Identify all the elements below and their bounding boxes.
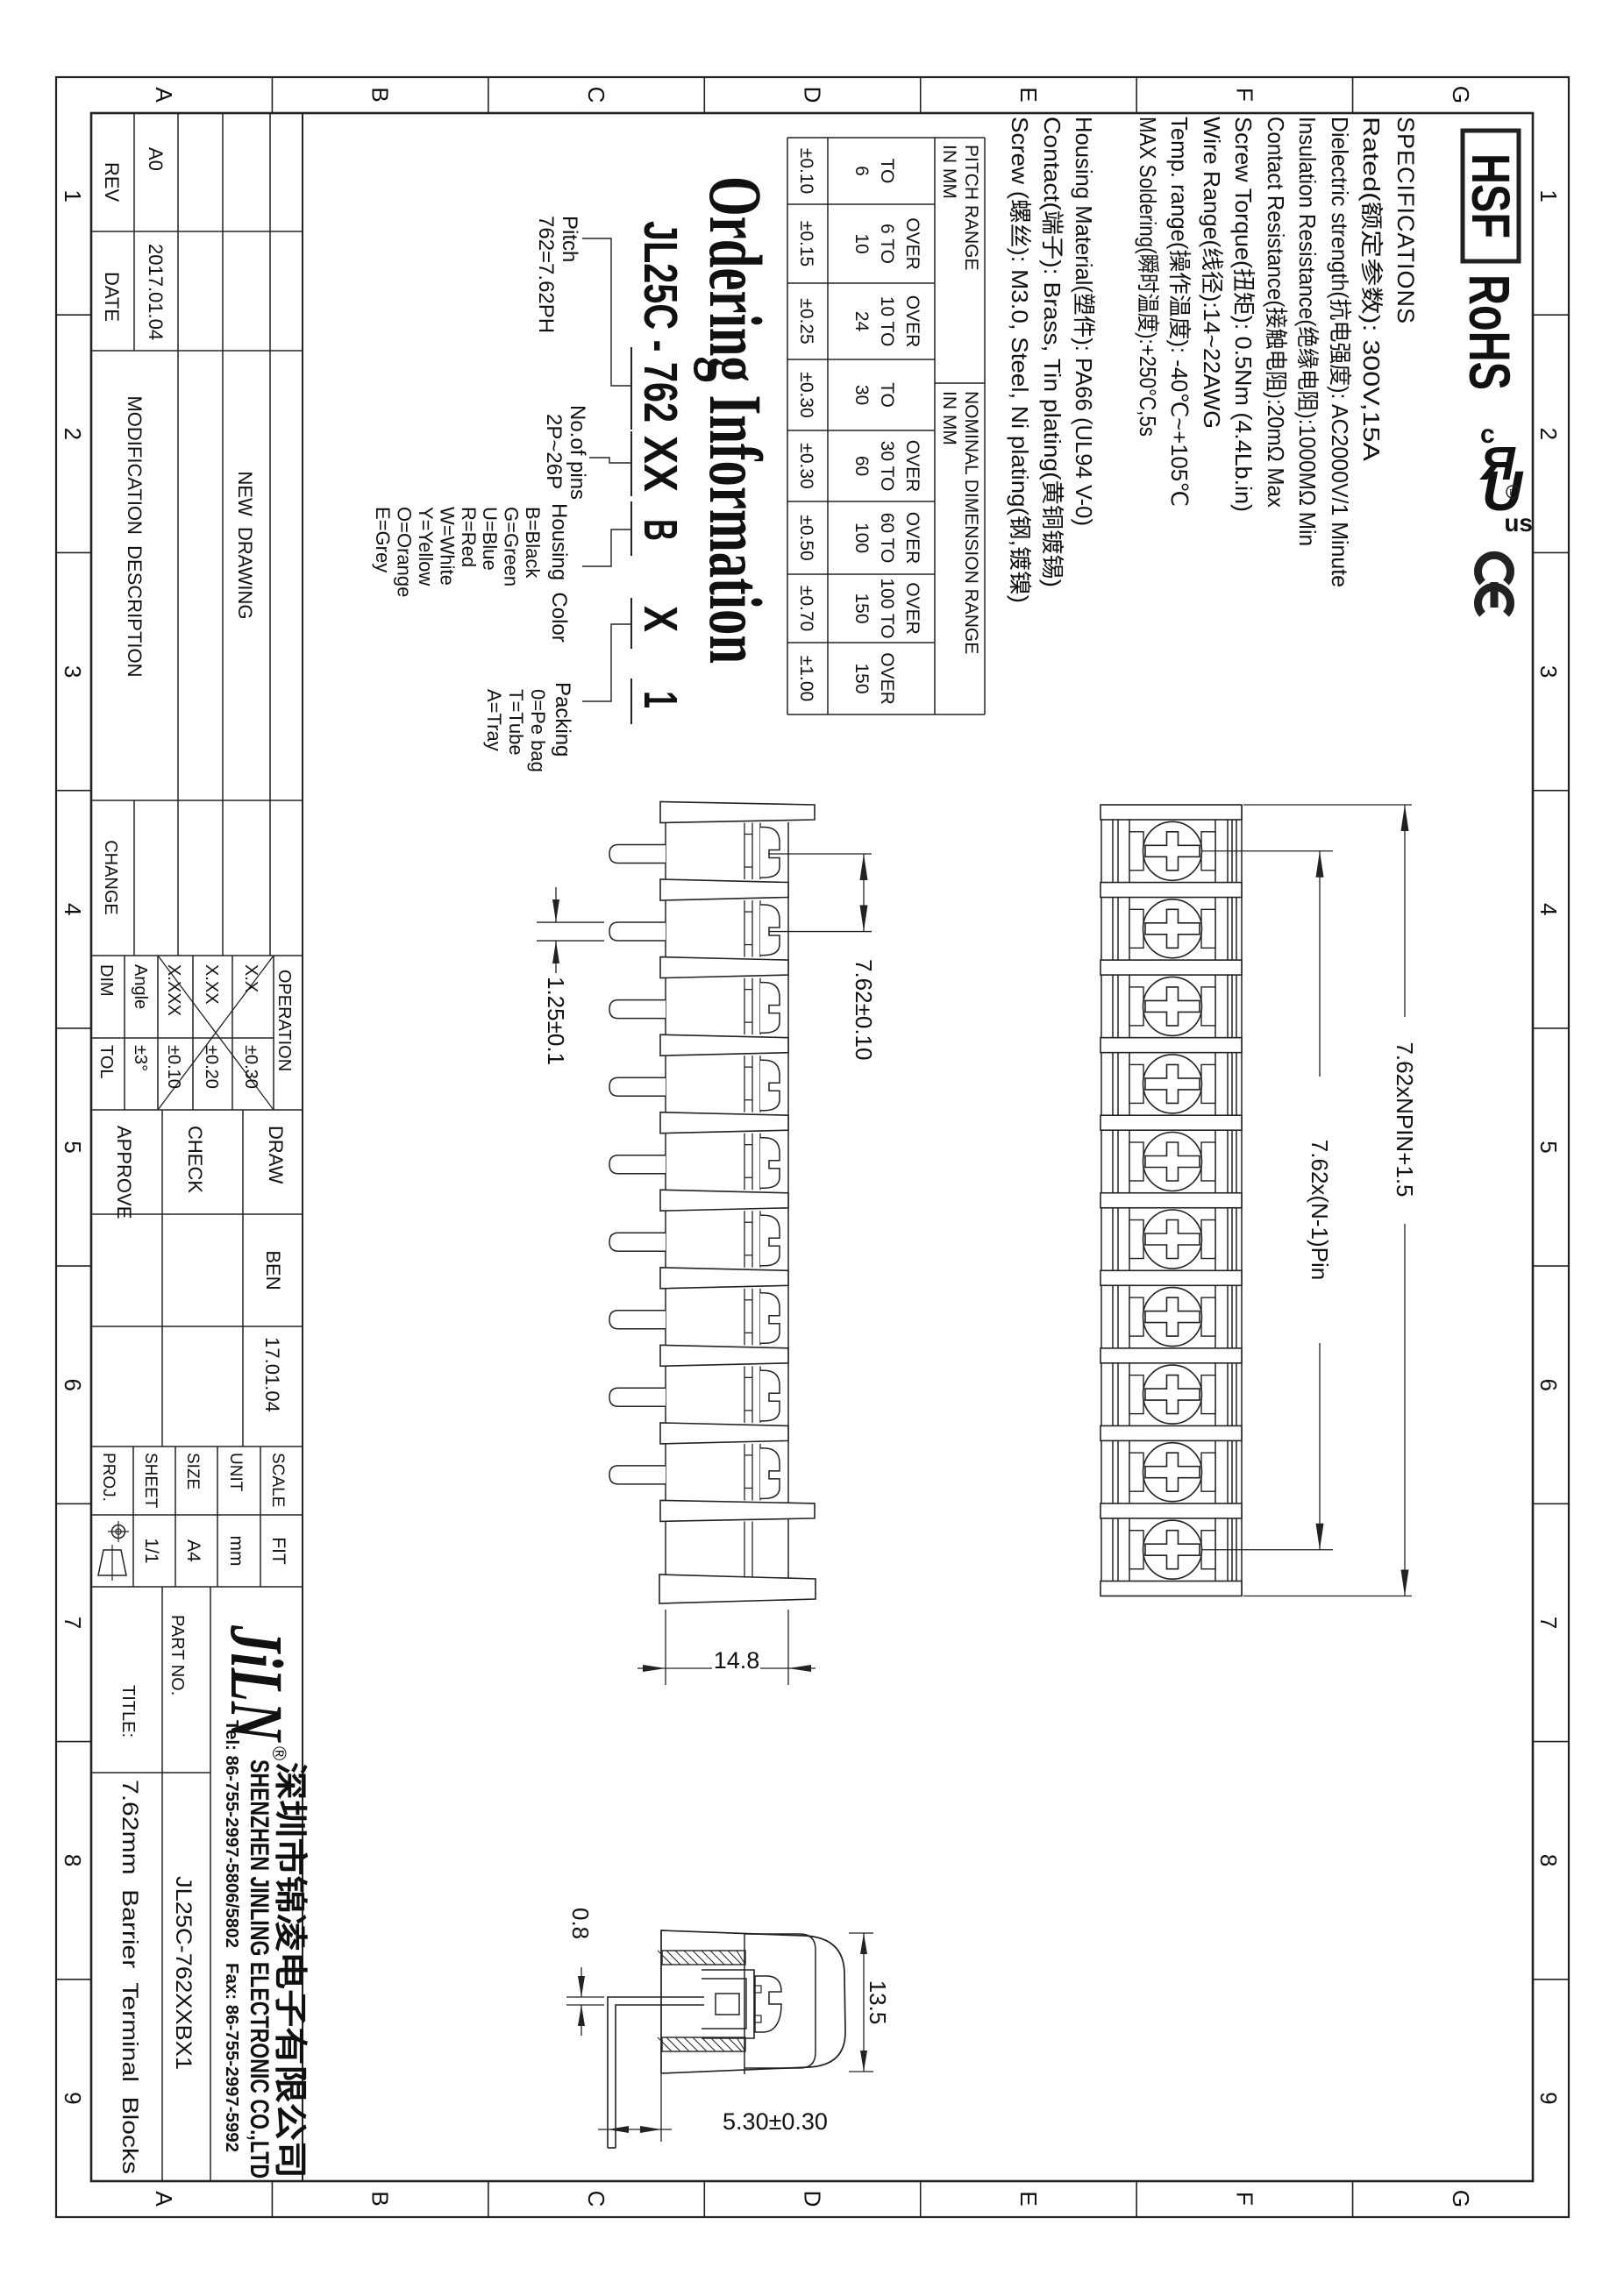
svg-text:D: D bbox=[800, 2191, 826, 2207]
svg-text:100: 100 bbox=[851, 522, 872, 553]
svg-text:C: C bbox=[583, 87, 609, 103]
svg-text:D: D bbox=[800, 87, 826, 103]
svg-text:F: F bbox=[1231, 88, 1257, 102]
svg-text:G: G bbox=[1448, 86, 1474, 103]
svg-text:100 TO: 100 TO bbox=[877, 578, 897, 638]
svg-text:2017.01.04: 2017.01.04 bbox=[145, 244, 167, 340]
svg-text:No.of pins: No.of pins bbox=[566, 405, 589, 500]
svg-text:C: C bbox=[583, 2191, 609, 2207]
svg-text:±0.70: ±0.70 bbox=[796, 586, 816, 631]
svg-text:PROJ.: PROJ. bbox=[99, 1453, 118, 1502]
svg-text:SHENZHEN JINLING ELECTRONIC CO: SHENZHEN JINLING ELECTRONIC CO.,LTD bbox=[245, 1759, 274, 2179]
svg-text:±0.25: ±0.25 bbox=[796, 298, 816, 344]
svg-text:TOL: TOL bbox=[96, 1045, 116, 1079]
svg-text:R=Red: R=Red bbox=[458, 507, 480, 567]
svg-text:150: 150 bbox=[851, 663, 872, 693]
svg-text:A4: A4 bbox=[183, 1539, 203, 1562]
svg-text:7: 7 bbox=[1535, 1617, 1562, 1629]
svg-text:E: E bbox=[1015, 87, 1042, 102]
svg-text:9: 9 bbox=[60, 2092, 86, 2104]
svg-text:FIT: FIT bbox=[268, 1537, 288, 1565]
svg-text:Angle: Angle bbox=[131, 964, 150, 1009]
svg-text:4: 4 bbox=[1535, 903, 1562, 915]
svg-text:E=Grey: E=Grey bbox=[372, 507, 394, 572]
svg-text:±0.15: ±0.15 bbox=[796, 221, 816, 267]
svg-text:mm: mm bbox=[226, 1536, 246, 1567]
svg-text:A: A bbox=[151, 2191, 177, 2207]
svg-text:NEW DRAWING: NEW DRAWING bbox=[234, 471, 256, 619]
svg-text:SIZE: SIZE bbox=[183, 1453, 202, 1489]
svg-text:10: 10 bbox=[851, 233, 872, 253]
svg-text:7.62±0.10: 7.62±0.10 bbox=[851, 959, 877, 1060]
svg-text:14.8: 14.8 bbox=[714, 1647, 760, 1674]
svg-text:O=Orange: O=Orange bbox=[394, 507, 416, 597]
svg-text:F: F bbox=[1231, 2192, 1257, 2206]
svg-text:Pitch: Pitch bbox=[558, 216, 581, 262]
svg-text:OVER: OVER bbox=[902, 217, 922, 270]
svg-text:SCALE: SCALE bbox=[268, 1453, 287, 1507]
svg-text:BEN: BEN bbox=[262, 1250, 284, 1290]
svg-text:7.62x(N-1)Pin: 7.62x(N-1)Pin bbox=[1307, 1140, 1333, 1280]
svg-text:2P~26P: 2P~26P bbox=[542, 414, 566, 489]
svg-text:1/1: 1/1 bbox=[141, 1538, 161, 1563]
svg-text:762=7.62PH: 762=7.62PH bbox=[534, 216, 558, 333]
svg-text:Tel: 86-755-2997-5806/5802 F: Tel: 86-755-2997-5806/5802 Fax: 86-755-2… bbox=[222, 1720, 241, 2152]
svg-text:30 TO: 30 TO bbox=[877, 441, 897, 492]
svg-text:13.5: 13.5 bbox=[865, 1980, 891, 2025]
svg-text:®: ® bbox=[268, 1746, 290, 1760]
svg-text:Temp. range(操作温度): -40℃~+105℃: Temp. range(操作温度): -40℃~+105℃ bbox=[1166, 117, 1193, 507]
svg-text:±0.30: ±0.30 bbox=[241, 1045, 260, 1089]
svg-text:17.01.04: 17.01.04 bbox=[261, 1337, 283, 1412]
svg-text:HSF: HSF bbox=[1461, 153, 1521, 238]
svg-text:A0: A0 bbox=[145, 147, 167, 171]
svg-text:OPERATION: OPERATION bbox=[274, 970, 294, 1071]
svg-text:X.XX: X.XX bbox=[202, 964, 221, 1005]
svg-text:6: 6 bbox=[851, 166, 872, 176]
svg-text:7: 7 bbox=[60, 1617, 86, 1629]
svg-text:OVER: OVER bbox=[877, 652, 897, 705]
svg-text:Housing Color: Housing Color bbox=[547, 503, 571, 643]
svg-text:SHEET: SHEET bbox=[141, 1453, 160, 1509]
svg-text:深圳市锦凌电子有限公司: 深圳市锦凌电子有限公司 bbox=[271, 1762, 308, 2179]
svg-text:DRAW: DRAW bbox=[265, 1126, 287, 1184]
svg-text:Y=Yellow: Y=Yellow bbox=[415, 507, 437, 586]
svg-text:1: 1 bbox=[60, 189, 86, 202]
svg-text:Contact Resistance(接触电阻):20mΩ: Contact Resistance(接触电阻):20mΩ Max bbox=[1263, 117, 1289, 508]
svg-text:5: 5 bbox=[60, 1141, 86, 1153]
svg-text:U=Blue: U=Blue bbox=[479, 507, 501, 571]
svg-text:Dielectric strength(抗电强度): AC2: Dielectric strength(抗电强度): AC2000V/1 Min… bbox=[1327, 117, 1353, 587]
svg-text:B: B bbox=[367, 87, 394, 102]
svg-text:2: 2 bbox=[60, 428, 86, 440]
svg-text:G: G bbox=[1448, 2190, 1474, 2207]
svg-text:6: 6 bbox=[60, 1378, 86, 1390]
svg-text:DIM: DIM bbox=[96, 964, 116, 997]
svg-text:Packing: Packing bbox=[551, 682, 574, 757]
svg-text:TITLE:: TITLE: bbox=[118, 1685, 138, 1738]
svg-text:30: 30 bbox=[851, 385, 872, 405]
svg-text:CHANGE: CHANGE bbox=[101, 840, 120, 915]
svg-text:IN MM: IN MM bbox=[939, 391, 959, 445]
svg-text:0=Pe bag: 0=Pe bag bbox=[527, 689, 549, 772]
svg-text:OVER: OVER bbox=[902, 512, 922, 565]
svg-text:Screw Torque(扭矩): 0.5Nm (4.4Lb: Screw Torque(扭矩): 0.5Nm (4.4Lb.in) bbox=[1230, 117, 1257, 512]
svg-text:X: X bbox=[634, 606, 687, 632]
svg-text:4: 4 bbox=[60, 903, 86, 915]
svg-text:9: 9 bbox=[1535, 2092, 1562, 2104]
svg-text:us: us bbox=[1504, 509, 1533, 537]
svg-text:8: 8 bbox=[1535, 1854, 1562, 1866]
svg-text:NOMINAL DIMENSION RANGE: NOMINAL DIMENSION RANGE bbox=[961, 391, 981, 654]
svg-text:5: 5 bbox=[1535, 1141, 1562, 1153]
svg-text:Screw (螺丝): M3.0, Steel, Ni pl: Screw (螺丝): M3.0, Steel, Ni plating(钢,镀镍… bbox=[1007, 117, 1033, 603]
svg-text:Contact(端子): Brass, Tin platin: Contact(端子): Brass, Tin plating(黄铜镀锡) bbox=[1039, 117, 1065, 587]
svg-text:SPECIFICATIONS: SPECIFICATIONS bbox=[1393, 117, 1419, 324]
svg-text:APPROVE: APPROVE bbox=[113, 1126, 135, 1219]
svg-text:B: B bbox=[367, 2191, 394, 2206]
svg-text:XX: XX bbox=[634, 436, 687, 492]
svg-text:3: 3 bbox=[60, 665, 86, 678]
svg-text:TO: TO bbox=[877, 159, 897, 184]
svg-text:0.8: 0.8 bbox=[567, 1908, 594, 1939]
svg-text:OVER: OVER bbox=[902, 440, 922, 493]
svg-text:3: 3 bbox=[1535, 665, 1562, 678]
svg-text:Housing Material(塑件): PA66 (UL: Housing Material(塑件): PA66 (UL94 V-0) bbox=[1071, 117, 1097, 526]
svg-text:6: 6 bbox=[1535, 1378, 1562, 1390]
svg-text:1.25±0.1: 1.25±0.1 bbox=[543, 977, 569, 1065]
svg-text:6 TO: 6 TO bbox=[877, 224, 897, 264]
svg-text:7.62mm Barrier Terminal Blo: 7.62mm Barrier Terminal Blocks bbox=[118, 1780, 142, 2174]
svg-text:B: B bbox=[634, 519, 687, 541]
svg-text:IN MM: IN MM bbox=[939, 145, 959, 199]
svg-text:PART NO.: PART NO. bbox=[167, 1615, 187, 1695]
svg-text:JL25C - 762: JL25C - 762 bbox=[634, 221, 687, 423]
svg-text:±3°: ±3° bbox=[131, 1045, 150, 1071]
svg-text:±0.10: ±0.10 bbox=[796, 148, 816, 194]
svg-text:8: 8 bbox=[60, 1854, 86, 1866]
svg-text:B=Black: B=Black bbox=[522, 507, 544, 579]
svg-text:5.30±0.30: 5.30±0.30 bbox=[723, 2108, 828, 2135]
svg-text:A=Tray: A=Tray bbox=[483, 689, 505, 751]
svg-text:MAX Soldering(瞬时温度):+250°C,5s: MAX Soldering(瞬时温度):+250°C,5s bbox=[1135, 117, 1161, 437]
svg-text:JL25C-762XXBX1: JL25C-762XXBX1 bbox=[171, 1876, 196, 2070]
svg-text:Insulation Resistance(绝缘电阻):10: Insulation Resistance(绝缘电阻):1000MΩ Min bbox=[1294, 117, 1321, 546]
svg-text:±0.20: ±0.20 bbox=[202, 1045, 221, 1089]
svg-text:UNIT: UNIT bbox=[226, 1453, 245, 1492]
svg-text:Wire Range(线径):14~22AWG: Wire Range(线径):14~22AWG bbox=[1199, 117, 1225, 429]
svg-text:±0.30: ±0.30 bbox=[796, 443, 816, 488]
svg-text:PITCH RANGE: PITCH RANGE bbox=[961, 145, 981, 271]
svg-text:X.XXX: X.XXX bbox=[164, 964, 183, 1016]
svg-text:R: R bbox=[1509, 488, 1515, 498]
svg-text:CHECK: CHECK bbox=[184, 1126, 206, 1193]
svg-text:1: 1 bbox=[1535, 189, 1562, 202]
svg-text:1: 1 bbox=[634, 691, 687, 708]
svg-text:7.62xNPIN+1.5: 7.62xNPIN+1.5 bbox=[1392, 1041, 1418, 1197]
svg-text:RoHS: RoHS bbox=[1457, 274, 1522, 390]
svg-text:MODIFICATION DESCRIPTION: MODIFICATION DESCRIPTION bbox=[124, 395, 146, 677]
svg-text:10 TO: 10 TO bbox=[877, 296, 897, 347]
svg-text:W=White: W=White bbox=[436, 507, 458, 586]
svg-text:OVER: OVER bbox=[902, 295, 922, 348]
svg-text:Rated(额定参数): 300V,15A: Rated(额定参数): 300V,15A bbox=[1358, 117, 1385, 462]
svg-text:OVER: OVER bbox=[902, 582, 922, 635]
svg-text:60 TO: 60 TO bbox=[877, 513, 897, 564]
svg-text:60: 60 bbox=[851, 456, 872, 476]
svg-text:X.X: X.X bbox=[241, 964, 260, 992]
svg-text:±1.00: ±1.00 bbox=[796, 656, 816, 701]
svg-text:±0.10: ±0.10 bbox=[164, 1045, 183, 1089]
svg-text:24: 24 bbox=[851, 311, 872, 332]
svg-text:±0.30: ±0.30 bbox=[796, 372, 816, 417]
svg-text:A: A bbox=[151, 87, 177, 103]
svg-text:REV: REV bbox=[101, 162, 123, 203]
svg-text:T=Tube: T=Tube bbox=[505, 689, 527, 756]
svg-text:DATE: DATE bbox=[101, 272, 123, 322]
svg-text:TO: TO bbox=[877, 382, 897, 408]
svg-text:150: 150 bbox=[851, 593, 872, 623]
svg-text:E: E bbox=[1015, 2191, 1042, 2206]
svg-text:G=Green: G=Green bbox=[501, 507, 523, 586]
svg-text:Ordering Information: Ordering Information bbox=[694, 176, 778, 664]
svg-text:2: 2 bbox=[1535, 428, 1562, 440]
svg-text:±0.50: ±0.50 bbox=[796, 515, 816, 560]
